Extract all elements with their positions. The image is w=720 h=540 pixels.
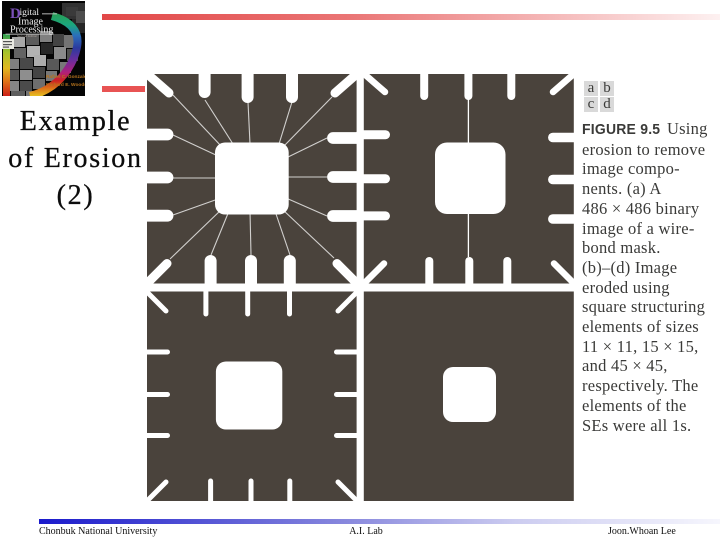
svg-text:Second Edition: Second Edition bbox=[17, 34, 38, 38]
svg-text:Richard E. Woods: Richard E. Woods bbox=[46, 82, 85, 88]
svg-text:Rafael C. Gonzalez: Rafael C. Gonzalez bbox=[46, 74, 85, 80]
